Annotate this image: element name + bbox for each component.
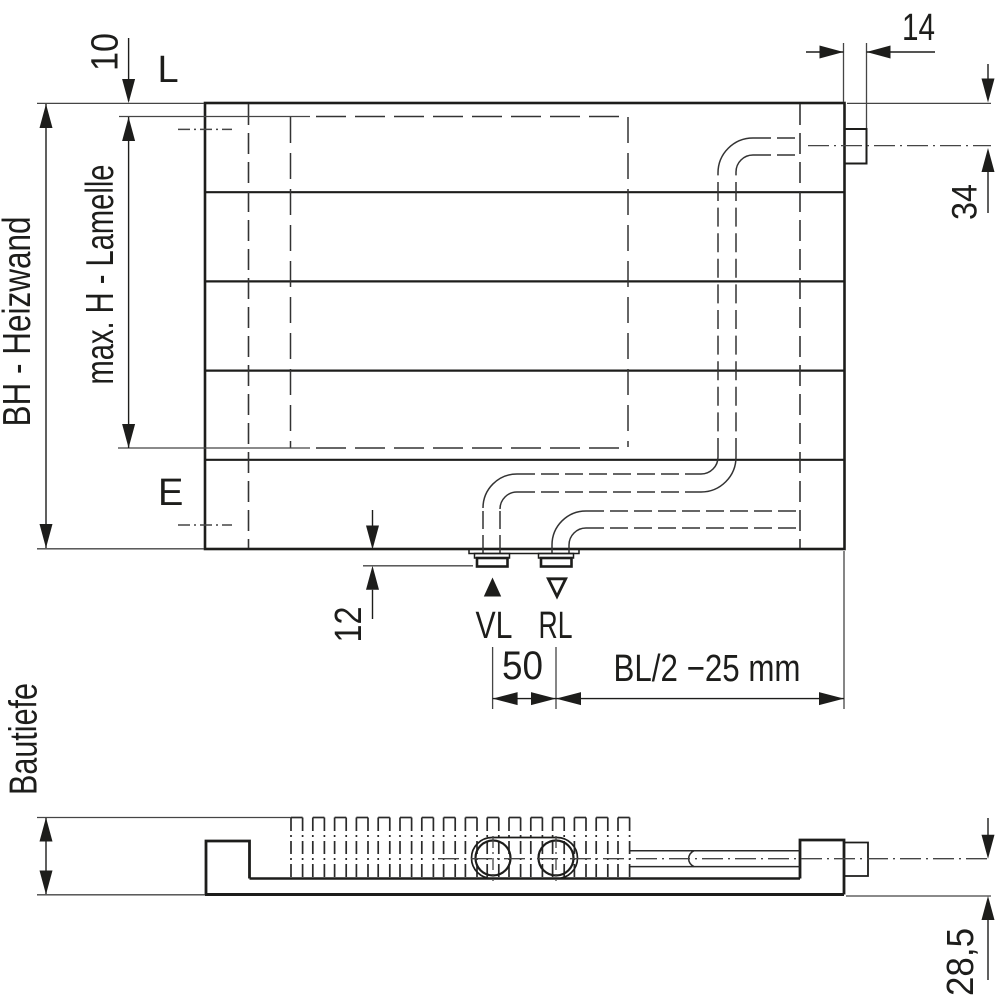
svg-text:L: L: [158, 49, 179, 91]
svg-text:10: 10: [85, 33, 127, 71]
svg-text:E: E: [158, 472, 183, 514]
svg-text:34: 34: [946, 184, 985, 220]
svg-text:VL: VL: [476, 605, 513, 647]
svg-text:RL: RL: [539, 605, 573, 647]
svg-text:BH - Heizwand: BH - Heizwand: [0, 217, 39, 427]
svg-text:28,5: 28,5: [940, 928, 982, 996]
svg-text:BL/2 −25 mm: BL/2 −25 mm: [614, 648, 801, 690]
svg-text:14: 14: [902, 7, 935, 49]
svg-text:50: 50: [502, 644, 543, 688]
svg-text:max. H - Lamelle: max. H - Lamelle: [79, 165, 122, 385]
svg-text:Bautiefe: Bautiefe: [3, 683, 46, 795]
svg-text:12: 12: [328, 607, 370, 643]
